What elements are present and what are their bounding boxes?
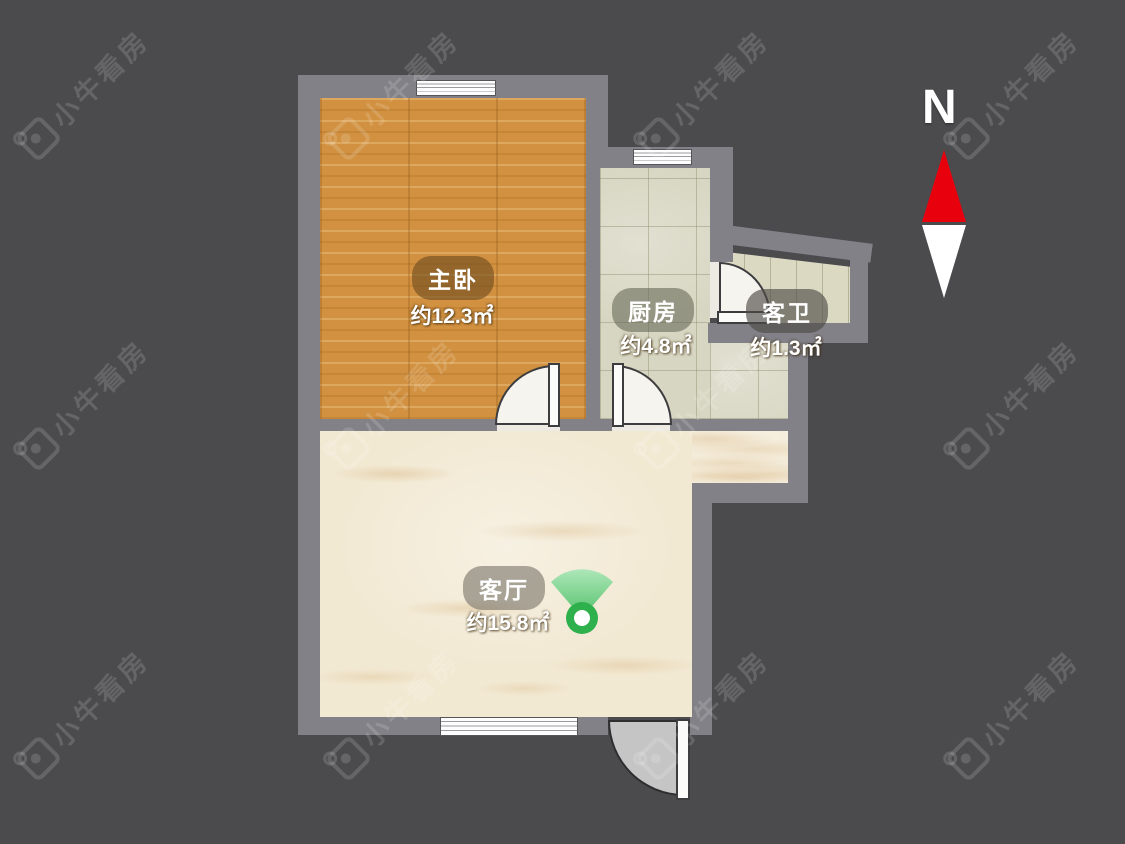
kitchen-label: 厨房 bbox=[612, 288, 694, 332]
watermark-text: 小牛看房 bbox=[971, 640, 1086, 755]
wall-right-upper bbox=[788, 343, 808, 483]
watermark: 小牛看房 bbox=[12, 330, 156, 474]
kitchen-area: 约4.8㎡ bbox=[620, 330, 691, 360]
living-room-label: 客厅 bbox=[463, 566, 545, 610]
wall-step bbox=[692, 483, 808, 503]
bathroom-label: 客卫 bbox=[746, 289, 828, 333]
wall-left bbox=[298, 75, 320, 735]
bathroom-area: 约1.3㎡ bbox=[750, 332, 821, 362]
living-room-window bbox=[440, 717, 578, 736]
wall-right-lower bbox=[692, 503, 712, 735]
watermark: 小牛看房 bbox=[942, 640, 1086, 784]
watermark-text: 小牛看房 bbox=[41, 640, 156, 755]
niu-logo-icon bbox=[14, 114, 62, 162]
wall-bedroom-kitchen-divider bbox=[586, 168, 600, 419]
watermark-text: 小牛看房 bbox=[41, 330, 156, 445]
wall-mid-left bbox=[320, 419, 497, 431]
watermark-text: 小牛看房 bbox=[661, 20, 776, 135]
kitchen-window bbox=[633, 149, 692, 165]
bedroom-label: 主卧 bbox=[412, 256, 494, 300]
bedroom-area: 约12.3㎡ bbox=[411, 300, 494, 330]
niu-logo-icon bbox=[944, 424, 992, 472]
floorplan-canvas: 主卧 约12.3㎡ 厨房 约4.8㎡ 客卫 约1.3㎡ 客厅 约15.8㎡ N … bbox=[0, 0, 1125, 844]
bedroom-window bbox=[416, 80, 496, 96]
compass-arrow-icon bbox=[920, 146, 968, 300]
wall-mid-center bbox=[560, 419, 612, 431]
watermark-text: 小牛看房 bbox=[41, 20, 156, 135]
niu-logo-icon bbox=[944, 734, 992, 782]
watermark-text: 小牛看房 bbox=[971, 330, 1086, 445]
entrance-door-leaf bbox=[676, 719, 690, 800]
living-room-floor-right bbox=[692, 431, 788, 483]
niu-logo-icon bbox=[324, 734, 372, 782]
watermark-text: 小牛看房 bbox=[971, 20, 1086, 135]
wall-mid-right bbox=[670, 419, 788, 431]
watermark: 小牛看房 bbox=[942, 20, 1086, 164]
watermark: 小牛看房 bbox=[632, 20, 776, 164]
panorama-fan-icon[interactable] bbox=[542, 566, 622, 636]
niu-logo-icon bbox=[14, 424, 62, 472]
entrance-door-swing bbox=[608, 720, 684, 796]
living-room-area: 约15.8㎡ bbox=[467, 607, 550, 637]
watermark: 小牛看房 bbox=[12, 640, 156, 784]
bedroom-door-leaf bbox=[548, 363, 560, 427]
compass-north-label: N bbox=[922, 80, 957, 135]
watermark: 小牛看房 bbox=[12, 20, 156, 164]
watermark: 小牛看房 bbox=[942, 330, 1086, 474]
kitchen-door-leaf bbox=[612, 363, 624, 427]
niu-logo-icon bbox=[14, 734, 62, 782]
